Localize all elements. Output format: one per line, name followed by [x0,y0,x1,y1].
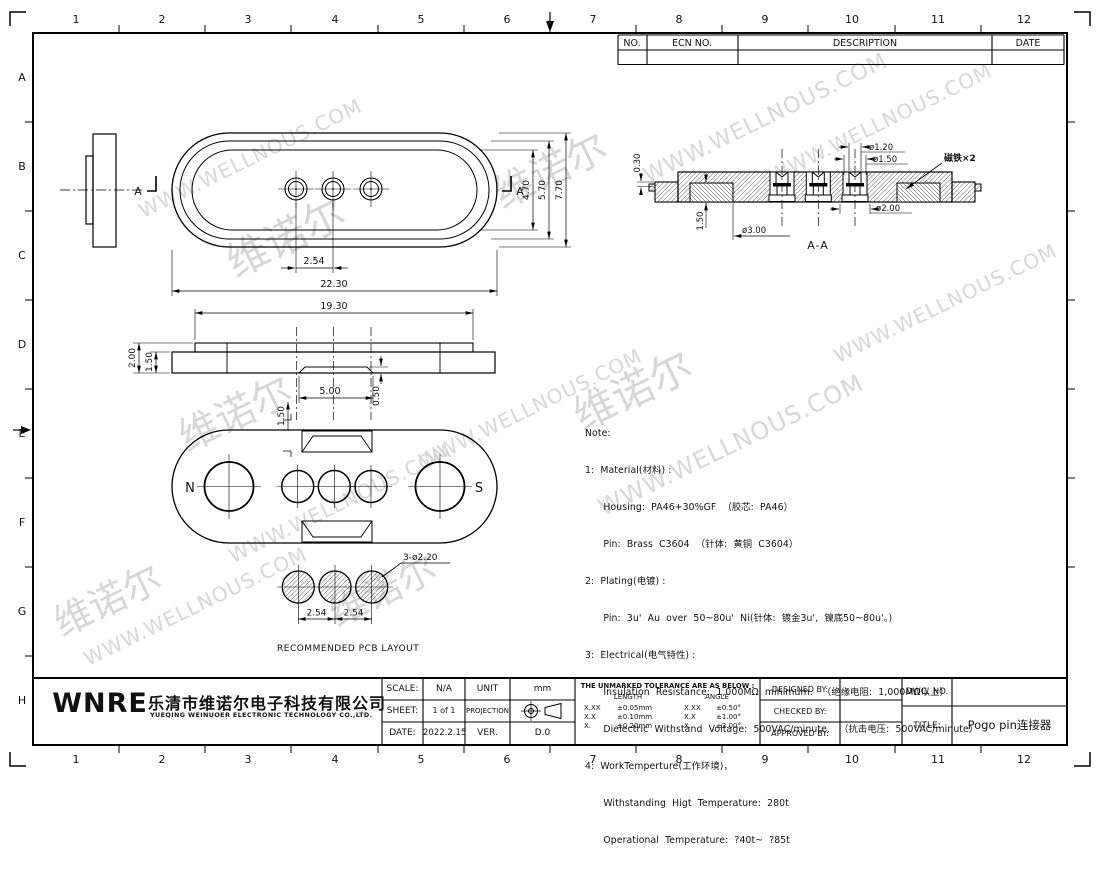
dim-front-body-h: 1.50 [145,352,155,372]
section-view: ø1.20 ø1.50 ø2.00 ø3.00 1.50 0.30 磁铁×2 A… [633,143,981,252]
dim-notch-offset: 1.50 [277,406,287,426]
col-label: 12 [1017,13,1031,26]
magnet-pocket-right [897,183,940,202]
dim-magnet-dia: ø3.00 [742,226,766,236]
row-label: E [19,427,26,440]
col-label: 5 [418,753,425,766]
dim-pin-dia: ø1.50 [873,155,897,165]
pole-label-s: S [475,481,483,496]
title-block-grid [33,678,1067,745]
dim-notch-width: 5.00 [319,386,340,397]
col-label: 2 [159,13,166,26]
dim-step: 0.30 [633,154,643,173]
col-label: 9 [762,13,769,26]
row-label: H [18,694,26,707]
dim-tip-dia: ø1.20 [869,143,893,153]
pole-label-n: N [185,481,195,496]
col-label: 8 [676,753,683,766]
dim-front-width: 19.30 [320,301,347,312]
col-label: 7 [590,13,597,26]
col-label: 4 [332,753,339,766]
col-label: 6 [504,13,511,26]
bottom-view: N S [172,414,497,543]
top-view: A A 2.54 22.30 4.70 5.70 7.70 [134,133,571,296]
row-label: C [18,249,26,262]
zone-labels: 1 2 3 4 5 6 7 8 9 10 11 12 1 2 3 4 5 6 7… [18,13,1031,766]
pcb-caption: RECOMMENDED PCB LAYOUT [277,644,419,654]
col-label: 2 [159,753,166,766]
row-label: F [19,516,25,529]
col-label: 9 [762,753,769,766]
dim-pin-pitch: 2.54 [303,256,324,267]
dim-pcb-pitch-1: 2.54 [306,609,326,619]
section-mark-left [147,176,156,191]
section-mark-right [502,176,511,191]
note-line: Operational Temperature: ?40t~ ?85t [585,835,978,847]
dim-height-mid: 5.70 [538,180,548,200]
col-label: 11 [931,13,945,26]
col-label: 10 [845,753,859,766]
center-arrow-top [546,21,554,32]
col-label: 1 [73,753,80,766]
col-label: 8 [676,13,683,26]
row-label: B [18,160,26,173]
dim-height-outer: 7.70 [555,180,565,200]
dim-notch-depth: 0.50 [372,386,382,406]
row-label: A [18,71,26,84]
dim-foot-dia: ø2.00 [876,204,900,214]
col-label: 7 [590,753,597,766]
dim-height-inner: 4.70 [522,180,532,200]
dim-pcb-pitch-2: 2.54 [343,609,363,619]
row-label: G [18,605,27,618]
side-view [60,134,142,247]
col-label: 1 [73,13,80,26]
section-caption: A-A [807,239,829,252]
col-label: 3 [245,13,252,26]
drawing-canvas: 1 2 3 4 5 6 7 8 9 10 11 12 1 2 3 4 5 6 7… [0,0,1100,778]
note-line: Withstanding Higt Temperature: 280t [585,798,978,810]
revision-table: NO. ECN NO. DESCRIPTION DATE [618,35,1064,65]
col-label: 5 [418,13,425,26]
sheet-frame [10,12,1090,766]
dim-pcb-holes: 3-ø2.20 [403,553,438,563]
rev-col-ecn: ECN NO. [672,38,712,49]
rev-col-no: NO. [623,38,640,49]
row-label: D [18,338,26,351]
col-label: 3 [245,753,252,766]
pogo-pins-top [278,171,389,207]
col-label: 4 [332,13,339,26]
col-label: 6 [504,753,511,766]
dim-magnet-depth: 1.50 [696,212,706,231]
projection-symbol [521,701,561,721]
magnet-callout: 磁铁×2 [944,152,976,164]
col-label: 11 [931,753,945,766]
rev-col-date: DATE [1016,38,1041,49]
front-view: 19.30 2.00 1.50 5.00 0.50 1.50 [128,301,495,430]
rev-col-description: DESCRIPTION [833,38,897,49]
section-label-left: A [134,185,142,198]
dim-front-total-h: 2.00 [128,348,138,368]
magnet-pocket-left [690,183,733,202]
dim-overall-length: 22.30 [320,279,347,290]
col-label: 10 [845,13,859,26]
col-label: 12 [1017,753,1031,766]
pcb-layout: 2.54 2.54 3-ø2.20 RECOMMENDED PCB LAYOUT [277,553,450,654]
